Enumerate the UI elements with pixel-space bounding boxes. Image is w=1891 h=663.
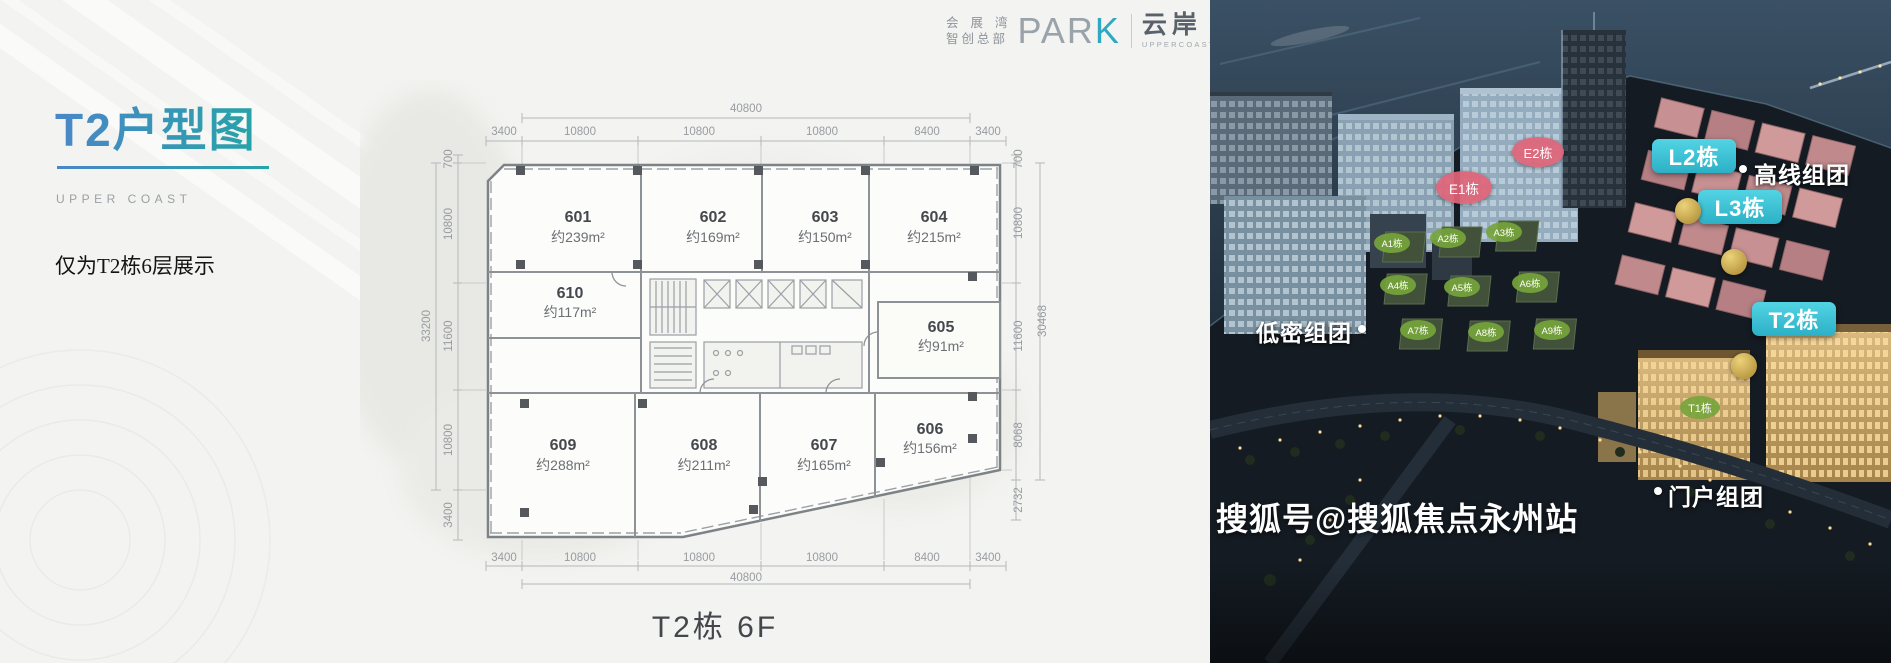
dim-label: 8068 [1013,422,1025,448]
brand-park-wordmark: PARK [1018,13,1121,49]
brand-park-letters: PAR [1018,10,1095,51]
room-area: 约211m² [678,457,731,473]
dim-label: 3400 [443,502,455,528]
aerial-render: E1栋 E2栋 L2栋 高线组团 L3栋 T2栋 低密组团 门户组团 T1栋 A… [1210,0,1891,663]
room-number: 605 [928,319,955,336]
dim-label: 3400 [491,552,517,564]
dim-label: 10800 [443,424,455,456]
room-area: 约117m² [544,304,597,320]
group-label-gaoxian: 高线组团 [1754,156,1850,190]
brand-logo: 会展湾 智创总部 PARK 云岸 UPPERCOAST [946,12,1216,49]
dim-label: 700 [1013,149,1025,168]
building-badge-l3: L3栋 [1698,190,1782,224]
brand-park-k-accent: K [1095,10,1121,51]
room-area: 约150m² [798,229,852,245]
room-number: 603 [812,209,839,226]
dim-label: 8400 [914,126,940,138]
brand-cn-line2: 智创总部 [946,31,1011,47]
room-area: 约91m² [918,338,964,354]
block-badge: A2栋 [1430,228,1466,248]
dim-label: 40800 [730,572,762,584]
watermark: 搜狐号@搜狐焦点永州站 [1216,494,1578,540]
dim-label: 40800 [730,103,762,115]
dim-label: 10800 [683,126,715,138]
dim-label: 10800 [683,552,715,564]
dim-label: 10800 [564,552,596,564]
gold-marker [1721,249,1747,275]
room-area: 约215m² [907,229,961,245]
room-number: 608 [691,437,718,454]
room-area: 约165m² [797,457,851,473]
group-label-menhu: 门户组团 [1668,478,1764,512]
dim-label: 10800 [443,208,455,240]
dim-label: 2732 [1013,487,1025,513]
room-area: 约288m² [536,457,590,473]
dim-label: 700 [443,149,455,168]
label-dot [1654,487,1662,495]
vignette [1210,560,1891,663]
building-badge-l2: L2栋 [1652,139,1736,173]
dim-label: 10800 [564,126,596,138]
block-badge: A4栋 [1380,275,1416,295]
building-badge-e2: E2栋 [1512,137,1564,167]
block-badge: A7栋 [1400,320,1436,340]
brand-yunan-cn: 云岸 [1142,12,1216,38]
dim-label: 3400 [491,126,517,138]
brand-cn-line1: 会展湾 [946,15,1020,31]
room-area: 约156m² [903,440,957,456]
floorplan-drawing: 40800 3400 10800 10800 10800 8400 3400 3… [360,80,1070,660]
floor-note: 仅为T2栋6层展示 [55,250,215,280]
gold-marker [1675,198,1701,224]
label-dot [1358,325,1366,333]
dim-label: 30468 [1037,305,1049,337]
gold-marker [1731,353,1757,379]
room-number: 610 [557,285,584,302]
brand-yunan-en: UPPERCOAST [1142,40,1216,49]
room-number: 607 [811,437,838,454]
block-badge: A1栋 [1374,233,1410,253]
dim-label: 10800 [806,552,838,564]
building-badge-t1: T1栋 [1680,396,1720,419]
building-badge-t2: T2栋 [1752,302,1836,336]
room-number: 609 [550,437,577,454]
room-number: 601 [565,209,592,226]
dim-label: 11600 [1013,320,1025,351]
page-subtitle: UPPER COAST [56,192,192,206]
brand-cn: 会展湾 智创总部 [946,15,1008,47]
brand-yunan: 云岸 UPPERCOAST [1142,12,1216,49]
dim-label: 10800 [1013,207,1025,239]
block-badge: A5栋 [1444,277,1480,297]
room-area: 约169m² [686,229,740,245]
block-badge: A3栋 [1486,222,1522,242]
room-number: 602 [700,209,727,226]
block-badge: A8栋 [1468,322,1504,342]
dim-label: 11600 [443,320,455,351]
page: 会展湾 智创总部 PARK 云岸 UPPERCOAST T2户型图 UPPER … [0,0,1891,663]
label-dot [1739,165,1747,173]
dim-label: 8400 [914,552,940,564]
group-label-dimi: 低密组团 [1256,314,1352,348]
block-badge: A6栋 [1512,273,1548,293]
logo-divider [1131,14,1132,48]
title-underline [57,166,269,169]
room-area: 约239m² [551,229,605,245]
dim-label: 10800 [806,126,838,138]
page-title: T2户型图 [55,94,257,160]
dim-label: 33200 [421,310,433,342]
plan-caption: T2栋 6F [585,602,845,646]
block-badge: A9栋 [1534,320,1570,340]
room-number: 604 [921,209,948,226]
room-number: 606 [917,421,944,438]
dim-label: 3400 [975,552,1001,564]
building-badge-e1: E1栋 [1436,171,1492,204]
dim-label: 3400 [975,126,1001,138]
